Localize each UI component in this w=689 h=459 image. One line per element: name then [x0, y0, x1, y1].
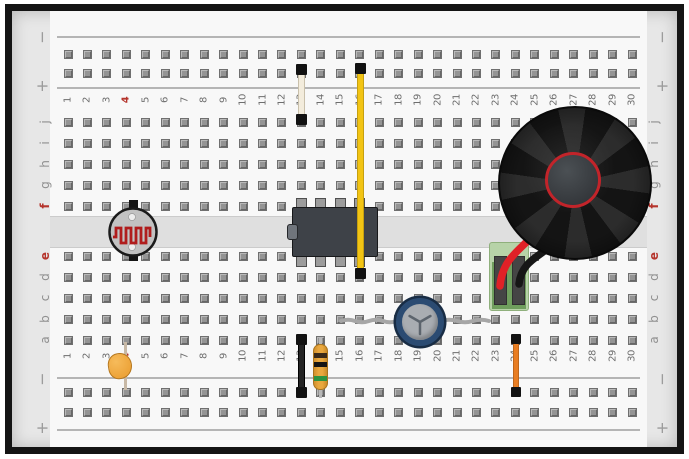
- jumper-white[interactable]: [298, 72, 305, 120]
- jumper-white-cap-top: [296, 64, 307, 75]
- ecap-lead-right: [441, 320, 489, 323]
- jumper-yellow-cap-bottom: [355, 268, 366, 279]
- ecap-vent: [402, 304, 438, 340]
- electrolytic-capacitor[interactable]: [396, 298, 444, 346]
- ecap-lead-left: [341, 320, 397, 323]
- ic-8pin-dip[interactable]: [292, 207, 378, 257]
- ic-notch: [287, 224, 298, 240]
- jumper-yellow-cap-top: [355, 63, 366, 74]
- jumper-yellow[interactable]: [357, 70, 364, 274]
- jumper-black-cap-bottom: [296, 387, 307, 398]
- jumper-orange-cap-top: [511, 334, 521, 344]
- resistor-band-1: [314, 353, 327, 358]
- resistor-band-3: [314, 376, 327, 381]
- photoresistor[interactable]: [106, 206, 160, 258]
- speaker-magnet: [545, 152, 601, 208]
- jumper-orange[interactable]: [513, 340, 519, 392]
- jumper-black-cap-top: [296, 334, 307, 345]
- resistor-band-2: [314, 362, 327, 367]
- jumper-black[interactable]: [298, 340, 305, 392]
- resistor[interactable]: [313, 344, 328, 390]
- jumper-white-cap-bottom: [296, 114, 307, 125]
- breadboard-diagram: 1122334455667788991010111112121313141415…: [0, 0, 689, 459]
- jumper-orange-cap-bottom: [511, 387, 521, 397]
